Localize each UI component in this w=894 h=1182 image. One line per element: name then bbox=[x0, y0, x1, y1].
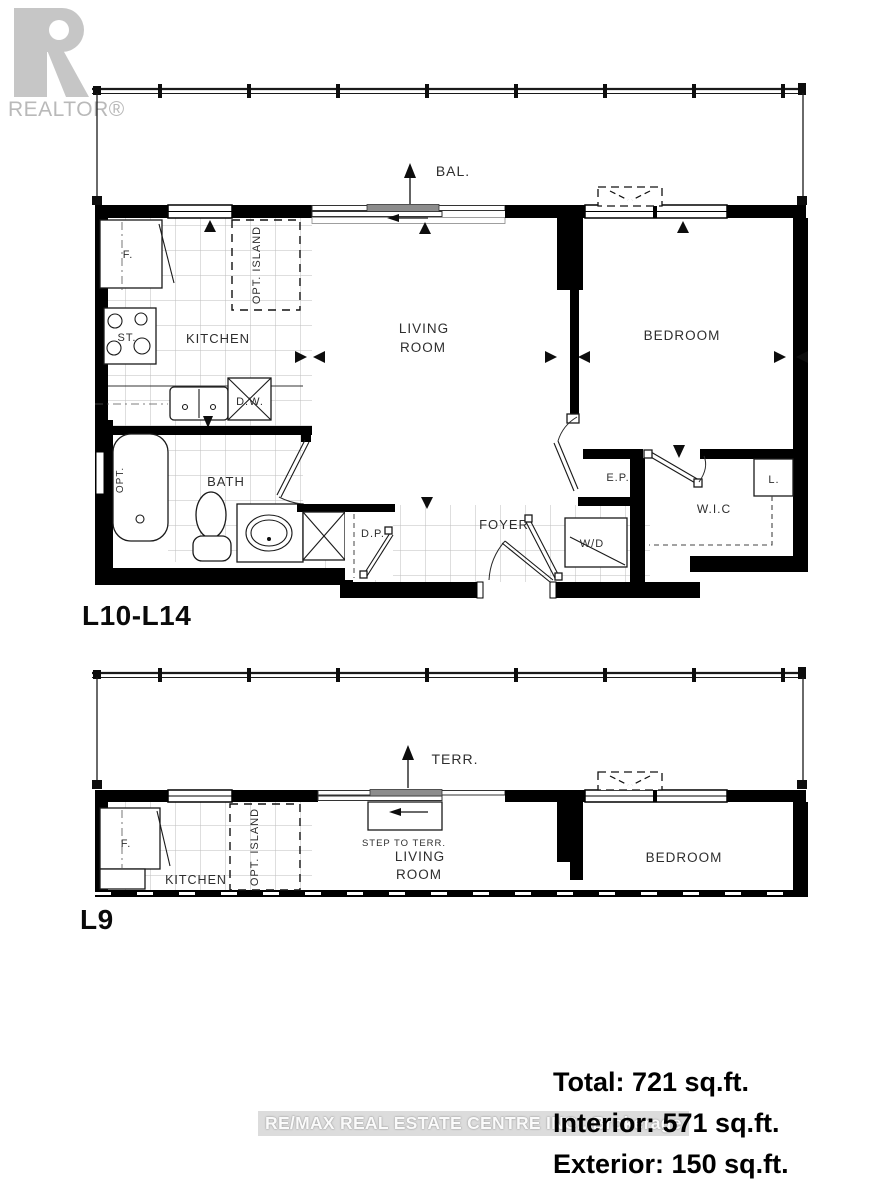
bath-label: BATH bbox=[207, 474, 245, 489]
dishwasher-label: D.W. bbox=[236, 396, 264, 408]
floorplan-page: REALTOR® BAL. bbox=[0, 0, 894, 1182]
terrace-door-arrow bbox=[402, 745, 414, 788]
area-interior: Interior: 571 sq.ft. bbox=[553, 1103, 789, 1144]
upper-floor-tag: L10-L14 bbox=[82, 600, 191, 632]
bedroom-window-dashed-box bbox=[598, 187, 662, 206]
living-room-label-2: ROOM bbox=[400, 340, 446, 355]
realtor-logo-text: REALTOR® bbox=[8, 98, 125, 121]
balcony-door-arrow bbox=[404, 163, 416, 204]
area-total: Total: 721 sq.ft. bbox=[553, 1062, 789, 1103]
fridge-label: F. bbox=[123, 249, 134, 261]
l9-optional-island-label: OPT. ISLAND bbox=[249, 808, 261, 886]
bathtub-opt-label: OPT. bbox=[115, 467, 126, 493]
kitchen-label: KITCHEN bbox=[186, 331, 250, 346]
plan-cut-line bbox=[95, 890, 808, 897]
bath-vanity bbox=[237, 504, 303, 562]
bedroom-label: BEDROOM bbox=[644, 328, 721, 343]
lower-floor-plan: TERR. bbox=[92, 667, 808, 897]
electrical-panel-label: E.P. bbox=[606, 472, 629, 484]
optional-island-label: OPT. ISLAND bbox=[251, 226, 263, 304]
l9-living-room-label-2: ROOM bbox=[396, 867, 442, 882]
l9-window-dashed-box bbox=[598, 772, 662, 790]
toilet bbox=[196, 492, 226, 538]
wic-group: L. W.I.C bbox=[644, 445, 793, 545]
upper-floor-plan: BAL. bbox=[92, 83, 808, 598]
wic-door bbox=[649, 452, 699, 484]
floorplan-drawing: REALTOR® BAL. bbox=[0, 0, 894, 1182]
terrace-label: TERR. bbox=[432, 751, 479, 767]
l9-fridge-label: F. bbox=[121, 838, 132, 850]
washer-dryer-label: W/D bbox=[580, 538, 604, 550]
logo-r-counter bbox=[49, 20, 69, 40]
l9-living-room-label-1: LIVING bbox=[395, 849, 445, 864]
living-room-label-1: LIVING bbox=[399, 321, 449, 336]
lower-floor-tag: L9 bbox=[80, 904, 114, 936]
logo-r-stem bbox=[14, 8, 47, 97]
hall-door bbox=[554, 441, 578, 491]
balcony-label: BAL. bbox=[436, 163, 470, 179]
step-to-terrace-label: STEP TO TERR. bbox=[362, 838, 446, 849]
area-summary: Total: 721 sq.ft. Interior: 571 sq.ft. E… bbox=[553, 1062, 789, 1182]
sliding-door-panel bbox=[367, 205, 439, 212]
terrace-railing bbox=[92, 667, 807, 789]
l9-sliding-door-panel bbox=[370, 790, 442, 797]
wic-label: W.I.C bbox=[697, 502, 731, 516]
realtor-logo: REALTOR® bbox=[8, 8, 125, 121]
foyer-label: FOYER bbox=[479, 517, 529, 532]
dp-closet-label: D.P. bbox=[361, 528, 385, 540]
logo-r-leg bbox=[47, 50, 89, 97]
l9-bedroom-label: BEDROOM bbox=[646, 850, 723, 865]
stove-label: ST. bbox=[118, 332, 137, 344]
l9-kitchen-label: KITCHEN bbox=[165, 873, 227, 887]
area-exterior: Exterior: 150 sq.ft. bbox=[553, 1144, 789, 1182]
linen-closet-label: L. bbox=[768, 474, 779, 486]
step-to-terrace: STEP TO TERR. bbox=[362, 802, 446, 849]
balcony-railing bbox=[92, 83, 807, 205]
